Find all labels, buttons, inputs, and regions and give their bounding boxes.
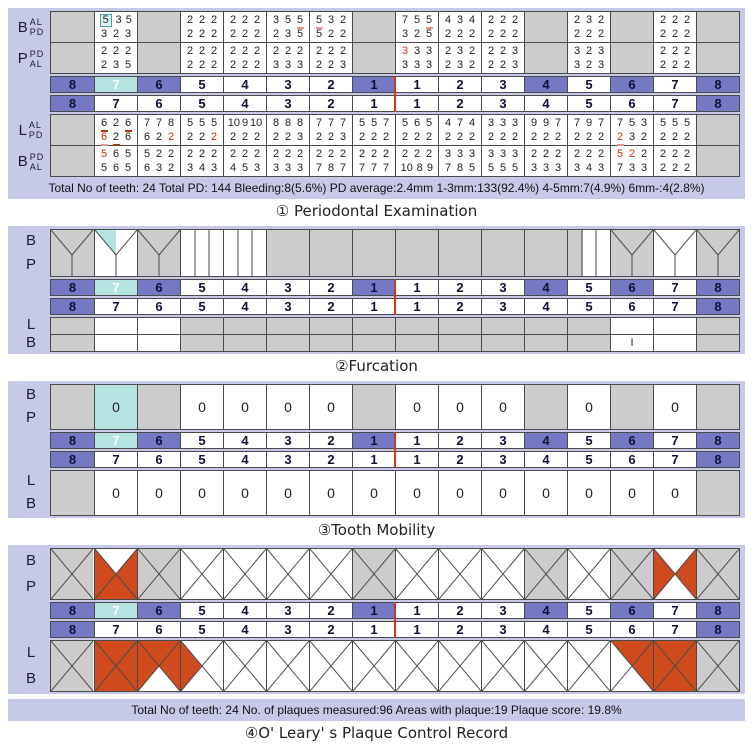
tooth-number-upper-R1[interactable]: 1 xyxy=(395,603,438,618)
plaque-lower-cell-R4[interactable] xyxy=(524,641,567,691)
tooth-number-lower-L1[interactable]: 1 xyxy=(352,299,395,314)
tooth-number-upper-L5[interactable]: 5 xyxy=(180,603,223,618)
tooth-number-lower-L3[interactable]: 3 xyxy=(266,452,309,467)
mobility-lower-cell-L5[interactable]: 0 xyxy=(180,471,223,515)
furcation-lower-cell-R1[interactable] xyxy=(395,335,438,351)
tooth-number-upper-L6[interactable]: 6 xyxy=(137,280,180,295)
plaque-upper-cell-R1[interactable] xyxy=(395,549,438,599)
tooth-number-upper-R5[interactable]: 5 xyxy=(567,433,610,448)
perio-buccal-lower-cell-R8[interactable] xyxy=(696,146,739,176)
tooth-number-upper-L4[interactable]: 4 xyxy=(223,77,266,92)
furcation-lower-cell-L5[interactable] xyxy=(180,318,223,334)
tooth-number-lower-L2[interactable]: 2 xyxy=(309,96,352,111)
tooth-number-lower-R3[interactable]: 3 xyxy=(481,452,524,467)
perio-buccal-cell-L1[interactable] xyxy=(352,12,395,42)
furcation-upper-cell-R3[interactable] xyxy=(481,230,524,276)
perio-buccal-cell-L6[interactable] xyxy=(137,12,180,42)
tooth-number-upper-R3[interactable]: 3 xyxy=(481,77,524,92)
perio-buccal-cell-R8[interactable] xyxy=(696,12,739,42)
tooth-number-upper-R7[interactable]: 7 xyxy=(653,280,696,295)
furcation-lower-cell-L2[interactable] xyxy=(309,335,352,351)
plaque-upper-cell-R8[interactable] xyxy=(696,549,739,599)
furcation-upper-cell-R2[interactable] xyxy=(438,230,481,276)
mobility-upper-cell-R7[interactable]: 0 xyxy=(653,385,696,429)
perio-buccal-lower-cell-L8[interactable] xyxy=(51,146,94,176)
tooth-number-upper-R3[interactable]: 3 xyxy=(481,280,524,295)
furcation-lower-cell-L7[interactable] xyxy=(94,335,137,351)
perio-buccal-lower-cell-R4[interactable]: 222333 xyxy=(524,146,567,176)
tooth-number-lower-L7[interactable]: 7 xyxy=(94,96,137,111)
tooth-number-upper-R6[interactable]: 6 xyxy=(610,433,653,448)
plaque-lower-cell-R7[interactable] xyxy=(653,641,696,691)
tooth-number-upper-L5[interactable]: 5 xyxy=(180,433,223,448)
tooth-number-lower-R6[interactable]: 6 xyxy=(610,452,653,467)
mobility-upper-cell-L7[interactable]: 0 xyxy=(94,385,137,429)
tooth-number-upper-L7[interactable]: 7 xyxy=(94,77,137,92)
perio-palatal-cell-R6[interactable] xyxy=(610,43,653,73)
mobility-lower-cell-R6[interactable]: 0 xyxy=(610,471,653,515)
plaque-upper-cell-L2[interactable] xyxy=(309,549,352,599)
tooth-number-upper-L4[interactable]: 4 xyxy=(223,280,266,295)
tooth-number-lower-L6[interactable]: 6 xyxy=(137,299,180,314)
perio-lingual-cell-L1[interactable]: 557222 xyxy=(352,115,395,145)
perio-lingual-cell-L8[interactable] xyxy=(51,115,94,145)
tooth-number-upper-R7[interactable]: 7 xyxy=(653,77,696,92)
mobility-upper-cell-R1[interactable]: 0 xyxy=(395,385,438,429)
tooth-number-lower-L2[interactable]: 2 xyxy=(309,452,352,467)
perio-buccal-cell-R4[interactable] xyxy=(524,12,567,42)
perio-buccal-cell-R2[interactable]: 434222 xyxy=(438,12,481,42)
tooth-number-lower-R8[interactable]: 8 xyxy=(696,96,739,111)
tooth-number-lower-L8[interactable]: 8 xyxy=(51,622,94,637)
furcation-upper-cell-L6[interactable] xyxy=(137,230,180,276)
tooth-number-upper-L8[interactable]: 8 xyxy=(51,603,94,618)
tooth-number-upper-L3[interactable]: 3 xyxy=(266,603,309,618)
perio-palatal-cell-L3[interactable]: 222333 xyxy=(266,43,309,73)
perio-buccal-cell-R7[interactable]: 222222 xyxy=(653,12,696,42)
perio-buccal-lower-cell-L4[interactable]: 222453 xyxy=(223,146,266,176)
perio-palatal-cell-R8[interactable] xyxy=(696,43,739,73)
tooth-number-upper-L7[interactable]: 7 xyxy=(94,433,137,448)
tooth-number-upper-R5[interactable]: 5 xyxy=(567,603,610,618)
tooth-number-lower-L8[interactable]: 8 xyxy=(51,299,94,314)
perio-buccal-cell-R6[interactable] xyxy=(610,12,653,42)
plaque-upper-cell-L5[interactable] xyxy=(180,549,223,599)
furcation-upper-cell-R8[interactable] xyxy=(696,230,739,276)
perio-palatal-cell-R4[interactable] xyxy=(524,43,567,73)
tooth-number-lower-L2[interactable]: 2 xyxy=(309,622,352,637)
furcation-lower-cell-L2[interactable] xyxy=(309,318,352,334)
tooth-number-upper-L3[interactable]: 3 xyxy=(266,280,309,295)
perio-buccal-lower-cell-R6[interactable]: 522733 xyxy=(610,146,653,176)
tooth-number-upper-L3[interactable]: 3 xyxy=(266,433,309,448)
mobility-lower-cell-L4[interactable]: 0 xyxy=(223,471,266,515)
tooth-number-lower-R3[interactable]: 3 xyxy=(481,96,524,111)
tooth-number-upper-R8[interactable]: 8 xyxy=(696,603,739,618)
perio-palatal-cell-L4[interactable]: 222222 xyxy=(223,43,266,73)
perio-lingual-cell-R8[interactable] xyxy=(696,115,739,145)
mobility-lower-cell-L3[interactable]: 0 xyxy=(266,471,309,515)
mobility-lower-cell-R1[interactable]: 0 xyxy=(395,471,438,515)
mobility-lower-cell-L6[interactable]: 0 xyxy=(137,471,180,515)
perio-palatal-cell-R2[interactable]: 232232 xyxy=(438,43,481,73)
plaque-lower-cell-R3[interactable] xyxy=(481,641,524,691)
mobility-lower-cell-L2[interactable]: 0 xyxy=(309,471,352,515)
tooth-number-upper-R8[interactable]: 8 xyxy=(696,433,739,448)
tooth-number-upper-R5[interactable]: 5 xyxy=(567,280,610,295)
tooth-number-lower-L6[interactable]: 6 xyxy=(137,452,180,467)
tooth-number-lower-L1[interactable]: 1 xyxy=(352,96,395,111)
tooth-number-lower-L8[interactable]: 8 xyxy=(51,96,94,111)
perio-buccal-lower-cell-L2[interactable]: 222787 xyxy=(309,146,352,176)
plaque-upper-cell-L6[interactable] xyxy=(137,549,180,599)
perio-buccal-cell-L5[interactable]: 222222 xyxy=(180,12,223,42)
perio-buccal-cell-L4[interactable]: 222222 xyxy=(223,12,266,42)
furcation-lower-cell-R4[interactable] xyxy=(524,318,567,334)
tooth-number-lower-R4[interactable]: 4 xyxy=(524,299,567,314)
perio-palatal-cell-L6[interactable] xyxy=(137,43,180,73)
plaque-upper-cell-L1[interactable] xyxy=(352,549,395,599)
mobility-upper-cell-R8[interactable] xyxy=(696,385,739,429)
perio-palatal-cell-L1[interactable] xyxy=(352,43,395,73)
tooth-number-upper-R2[interactable]: 2 xyxy=(438,433,481,448)
tooth-number-upper-L8[interactable]: 8 xyxy=(51,77,94,92)
tooth-number-lower-L5[interactable]: 5 xyxy=(180,452,223,467)
perio-buccal-cell-R5[interactable]: 232222 xyxy=(567,12,610,42)
furcation-lower-cell-R7[interactable] xyxy=(653,318,696,334)
tooth-number-upper-L6[interactable]: 6 xyxy=(137,433,180,448)
perio-lingual-cell-L2[interactable]: 777223 xyxy=(309,115,352,145)
plaque-lower-cell-L5[interactable] xyxy=(180,641,223,691)
plaque-lower-cell-L7[interactable] xyxy=(94,641,137,691)
tooth-number-lower-R7[interactable]: 7 xyxy=(653,299,696,314)
tooth-number-upper-R7[interactable]: 7 xyxy=(653,603,696,618)
furcation-upper-cell-L1[interactable] xyxy=(352,230,395,276)
tooth-number-lower-L7[interactable]: 7 xyxy=(94,299,137,314)
perio-buccal-lower-cell-R2[interactable]: 333785 xyxy=(438,146,481,176)
perio-buccal-cell-L7[interactable]: 535323 xyxy=(94,12,137,42)
plaque-upper-cell-L7[interactable] xyxy=(94,549,137,599)
perio-buccal-lower-cell-L1[interactable]: 222777 xyxy=(352,146,395,176)
plaque-upper-cell-R5[interactable] xyxy=(567,549,610,599)
mobility-upper-cell-L2[interactable]: 0 xyxy=(309,385,352,429)
furcation-upper-cell-L5[interactable] xyxy=(180,230,223,276)
perio-palatal-cell-R1[interactable]: 333333 xyxy=(395,43,438,73)
tooth-number-upper-R4[interactable]: 4 xyxy=(524,280,567,295)
tooth-number-upper-R7[interactable]: 7 xyxy=(653,433,696,448)
tooth-number-upper-R8[interactable]: 8 xyxy=(696,77,739,92)
perio-buccal-lower-cell-L5[interactable]: 222343 xyxy=(180,146,223,176)
tooth-number-upper-R6[interactable]: 6 xyxy=(610,77,653,92)
tooth-number-lower-R4[interactable]: 4 xyxy=(524,96,567,111)
perio-lingual-cell-L3[interactable]: 888223 xyxy=(266,115,309,145)
mobility-upper-cell-L1[interactable] xyxy=(352,385,395,429)
furcation-lower-cell-R7[interactable] xyxy=(653,335,696,351)
mobility-upper-cell-R2[interactable]: 0 xyxy=(438,385,481,429)
plaque-lower-cell-L2[interactable] xyxy=(309,641,352,691)
mobility-lower-cell-R5[interactable]: 0 xyxy=(567,471,610,515)
plaque-lower-cell-R2[interactable] xyxy=(438,641,481,691)
tooth-number-upper-L7[interactable]: 7 xyxy=(94,280,137,295)
perio-palatal-cell-L8[interactable] xyxy=(51,43,94,73)
tooth-number-upper-R3[interactable]: 3 xyxy=(481,603,524,618)
mobility-lower-cell-R8[interactable] xyxy=(696,471,739,515)
perio-palatal-cell-R7[interactable]: 222222 xyxy=(653,43,696,73)
tooth-number-upper-L3[interactable]: 3 xyxy=(266,77,309,92)
furcation-upper-cell-L7[interactable] xyxy=(94,230,137,276)
tooth-number-upper-R2[interactable]: 2 xyxy=(438,280,481,295)
perio-lingual-cell-L6[interactable]: 778622 xyxy=(137,115,180,145)
tooth-number-lower-R7[interactable]: 7 xyxy=(653,452,696,467)
tooth-number-lower-R1[interactable]: 1 xyxy=(395,96,438,111)
mobility-lower-cell-L7[interactable]: 0 xyxy=(94,471,137,515)
tooth-number-lower-L7[interactable]: 7 xyxy=(94,452,137,467)
tooth-number-lower-L3[interactable]: 3 xyxy=(266,299,309,314)
tooth-number-upper-L6[interactable]: 6 xyxy=(137,77,180,92)
tooth-number-lower-L2[interactable]: 2 xyxy=(309,299,352,314)
plaque-upper-cell-R2[interactable] xyxy=(438,549,481,599)
plaque-upper-cell-R4[interactable] xyxy=(524,549,567,599)
tooth-number-lower-R6[interactable]: 6 xyxy=(610,622,653,637)
furcation-upper-cell-L2[interactable] xyxy=(309,230,352,276)
tooth-number-upper-L2[interactable]: 2 xyxy=(309,603,352,618)
perio-lingual-cell-L4[interactable]: 10910222 xyxy=(223,115,266,145)
furcation-lower-cell-R2[interactable] xyxy=(438,318,481,334)
furcation-lower-cell-R1[interactable] xyxy=(395,318,438,334)
plaque-upper-cell-L3[interactable] xyxy=(266,549,309,599)
mobility-lower-cell-R7[interactable]: 0 xyxy=(653,471,696,515)
perio-lingual-cell-R4[interactable]: 997222 xyxy=(524,115,567,145)
tooth-number-lower-R4[interactable]: 4 xyxy=(524,452,567,467)
plaque-lower-cell-R5[interactable] xyxy=(567,641,610,691)
tooth-number-lower-L4[interactable]: 4 xyxy=(223,299,266,314)
furcation-upper-cell-R6[interactable] xyxy=(610,230,653,276)
plaque-upper-cell-R3[interactable] xyxy=(481,549,524,599)
furcation-lower-cell-L8[interactable] xyxy=(51,335,94,351)
tooth-number-lower-L7[interactable]: 7 xyxy=(94,622,137,637)
plaque-upper-cell-L8[interactable] xyxy=(51,549,94,599)
tooth-number-upper-R5[interactable]: 5 xyxy=(567,77,610,92)
furcation-lower-cell-L5[interactable] xyxy=(180,335,223,351)
tooth-number-upper-L2[interactable]: 2 xyxy=(309,77,352,92)
perio-palatal-cell-L5[interactable]: 222222 xyxy=(180,43,223,73)
furcation-lower-cell-L3[interactable] xyxy=(266,318,309,334)
perio-buccal-cell-L2[interactable]: 532522 xyxy=(309,12,352,42)
perio-buccal-cell-R3[interactable]: 222222 xyxy=(481,12,524,42)
mobility-lower-cell-L8[interactable] xyxy=(51,471,94,515)
tooth-number-lower-L1[interactable]: 1 xyxy=(352,622,395,637)
tooth-number-upper-L1[interactable]: 1 xyxy=(352,433,395,448)
furcation-upper-cell-R7[interactable] xyxy=(653,230,696,276)
furcation-lower-cell-L6[interactable] xyxy=(137,318,180,334)
mobility-lower-cell-L1[interactable]: 0 xyxy=(352,471,395,515)
furcation-lower-cell-R8[interactable] xyxy=(696,318,739,334)
furcation-lower-cell-L4[interactable] xyxy=(223,318,266,334)
mobility-upper-cell-R5[interactable]: 0 xyxy=(567,385,610,429)
tooth-number-upper-L6[interactable]: 6 xyxy=(137,603,180,618)
perio-buccal-lower-cell-L6[interactable]: 522632 xyxy=(137,146,180,176)
mobility-lower-cell-R3[interactable]: 0 xyxy=(481,471,524,515)
furcation-upper-cell-R1[interactable] xyxy=(395,230,438,276)
perio-lingual-cell-R5[interactable]: 797222 xyxy=(567,115,610,145)
plaque-upper-cell-L4[interactable] xyxy=(223,549,266,599)
tooth-number-lower-L4[interactable]: 4 xyxy=(223,96,266,111)
tooth-number-lower-L3[interactable]: 3 xyxy=(266,96,309,111)
perio-palatal-cell-L7[interactable]: 222235 xyxy=(94,43,137,73)
tooth-number-lower-R2[interactable]: 2 xyxy=(438,452,481,467)
tooth-number-lower-R4[interactable]: 4 xyxy=(524,622,567,637)
tooth-number-lower-R6[interactable]: 6 xyxy=(610,299,653,314)
perio-buccal-lower-cell-L7[interactable]: 565565 xyxy=(94,146,137,176)
furcation-lower-cell-L7[interactable] xyxy=(94,318,137,334)
tooth-number-lower-L5[interactable]: 5 xyxy=(180,622,223,637)
furcation-lower-cell-L8[interactable] xyxy=(51,318,94,334)
furcation-lower-cell-L3[interactable] xyxy=(266,335,309,351)
tooth-number-lower-L6[interactable]: 6 xyxy=(137,96,180,111)
tooth-number-upper-L8[interactable]: 8 xyxy=(51,280,94,295)
tooth-number-lower-L3[interactable]: 3 xyxy=(266,622,309,637)
furcation-upper-cell-L3[interactable] xyxy=(266,230,309,276)
tooth-number-upper-L5[interactable]: 5 xyxy=(180,77,223,92)
tooth-number-lower-L4[interactable]: 4 xyxy=(223,622,266,637)
furcation-lower-cell-R4[interactable] xyxy=(524,335,567,351)
furcation-lower-cell-R3[interactable] xyxy=(481,335,524,351)
plaque-lower-cell-R1[interactable] xyxy=(395,641,438,691)
tooth-number-upper-L1[interactable]: 1 xyxy=(352,77,395,92)
tooth-number-upper-L4[interactable]: 4 xyxy=(223,603,266,618)
tooth-number-lower-R8[interactable]: 8 xyxy=(696,452,739,467)
tooth-number-lower-R5[interactable]: 5 xyxy=(567,452,610,467)
tooth-number-lower-R7[interactable]: 7 xyxy=(653,96,696,111)
tooth-number-lower-L6[interactable]: 6 xyxy=(137,622,180,637)
furcation-lower-cell-R3[interactable] xyxy=(481,318,524,334)
plaque-lower-cell-L3[interactable] xyxy=(266,641,309,691)
tooth-number-upper-L8[interactable]: 8 xyxy=(51,433,94,448)
perio-buccal-lower-cell-R1[interactable]: 2221089 xyxy=(395,146,438,176)
mobility-upper-cell-R3[interactable]: 0 xyxy=(481,385,524,429)
perio-lingual-cell-R2[interactable]: 474222 xyxy=(438,115,481,145)
tooth-number-lower-R1[interactable]: 1 xyxy=(395,299,438,314)
tooth-number-lower-L8[interactable]: 8 xyxy=(51,452,94,467)
tooth-number-lower-R5[interactable]: 5 xyxy=(567,622,610,637)
tooth-number-lower-R8[interactable]: 8 xyxy=(696,622,739,637)
tooth-number-upper-R3[interactable]: 3 xyxy=(481,433,524,448)
tooth-number-upper-R6[interactable]: 6 xyxy=(610,280,653,295)
tooth-number-lower-R3[interactable]: 3 xyxy=(481,299,524,314)
tooth-number-upper-R4[interactable]: 4 xyxy=(524,603,567,618)
plaque-lower-cell-L1[interactable] xyxy=(352,641,395,691)
tooth-number-upper-L7[interactable]: 7 xyxy=(94,603,137,618)
mobility-upper-cell-L5[interactable]: 0 xyxy=(180,385,223,429)
furcation-lower-cell-R5[interactable] xyxy=(567,318,610,334)
plaque-lower-cell-L6[interactable] xyxy=(137,641,180,691)
perio-lingual-cell-R3[interactable]: 333222 xyxy=(481,115,524,145)
perio-buccal-lower-cell-R3[interactable]: 333555 xyxy=(481,146,524,176)
tooth-number-upper-L5[interactable]: 5 xyxy=(180,280,223,295)
mobility-upper-cell-L4[interactable]: 0 xyxy=(223,385,266,429)
tooth-number-upper-L2[interactable]: 2 xyxy=(309,280,352,295)
plaque-lower-cell-L8[interactable] xyxy=(51,641,94,691)
tooth-number-upper-L1[interactable]: 1 xyxy=(352,280,395,295)
tooth-number-lower-R2[interactable]: 2 xyxy=(438,622,481,637)
tooth-number-upper-R4[interactable]: 4 xyxy=(524,433,567,448)
furcation-lower-cell-R8[interactable] xyxy=(696,335,739,351)
perio-lingual-cell-L7[interactable]: 626626 xyxy=(94,115,137,145)
tooth-number-lower-L1[interactable]: 1 xyxy=(352,452,395,467)
plaque-lower-cell-L4[interactable] xyxy=(223,641,266,691)
furcation-upper-cell-R4[interactable] xyxy=(524,230,567,276)
tooth-number-lower-R2[interactable]: 2 xyxy=(438,96,481,111)
mobility-upper-cell-L8[interactable] xyxy=(51,385,94,429)
perio-lingual-cell-R7[interactable]: 555222 xyxy=(653,115,696,145)
perio-palatal-cell-L2[interactable]: 222223 xyxy=(309,43,352,73)
perio-palatal-cell-R5[interactable]: 323323 xyxy=(567,43,610,73)
perio-buccal-cell-L8[interactable] xyxy=(51,12,94,42)
furcation-lower-cell-L1[interactable] xyxy=(352,318,395,334)
perio-palatal-cell-R3[interactable]: 223223 xyxy=(481,43,524,73)
perio-lingual-cell-L5[interactable]: 555222 xyxy=(180,115,223,145)
furcation-upper-cell-L8[interactable] xyxy=(51,230,94,276)
tooth-number-lower-R7[interactable]: 7 xyxy=(653,622,696,637)
perio-lingual-cell-R1[interactable]: 565222 xyxy=(395,115,438,145)
tooth-number-upper-L1[interactable]: 1 xyxy=(352,603,395,618)
perio-buccal-lower-cell-R7[interactable]: 222222 xyxy=(653,146,696,176)
tooth-number-lower-L5[interactable]: 5 xyxy=(180,299,223,314)
furcation-upper-cell-R5[interactable] xyxy=(567,230,610,276)
tooth-number-upper-R8[interactable]: 8 xyxy=(696,280,739,295)
tooth-number-upper-R1[interactable]: 1 xyxy=(395,77,438,92)
mobility-lower-cell-R2[interactable]: 0 xyxy=(438,471,481,515)
tooth-number-lower-R6[interactable]: 6 xyxy=(610,96,653,111)
tooth-number-upper-R2[interactable]: 2 xyxy=(438,603,481,618)
mobility-upper-cell-R4[interactable] xyxy=(524,385,567,429)
tooth-number-upper-R1[interactable]: 1 xyxy=(395,433,438,448)
mobility-upper-cell-L6[interactable] xyxy=(137,385,180,429)
tooth-number-lower-R1[interactable]: 1 xyxy=(395,622,438,637)
furcation-lower-cell-L4[interactable] xyxy=(223,335,266,351)
tooth-number-lower-L4[interactable]: 4 xyxy=(223,452,266,467)
perio-lingual-cell-R6[interactable]: 753232 xyxy=(610,115,653,145)
tooth-number-upper-L4[interactable]: 4 xyxy=(223,433,266,448)
mobility-upper-cell-L3[interactable]: 0 xyxy=(266,385,309,429)
tooth-number-upper-R4[interactable]: 4 xyxy=(524,77,567,92)
plaque-lower-cell-R6[interactable] xyxy=(610,641,653,691)
tooth-number-upper-R1[interactable]: 1 xyxy=(395,280,438,295)
plaque-lower-cell-R8[interactable] xyxy=(696,641,739,691)
perio-buccal-lower-cell-R5[interactable]: 222343 xyxy=(567,146,610,176)
mobility-upper-cell-R6[interactable] xyxy=(610,385,653,429)
tooth-number-upper-R2[interactable]: 2 xyxy=(438,77,481,92)
perio-buccal-cell-R1[interactable]: 755325 xyxy=(395,12,438,42)
furcation-upper-cell-L4[interactable] xyxy=(223,230,266,276)
furcation-lower-cell-L1[interactable] xyxy=(352,335,395,351)
tooth-number-lower-L5[interactable]: 5 xyxy=(180,96,223,111)
tooth-number-upper-L2[interactable]: 2 xyxy=(309,433,352,448)
tooth-number-upper-R6[interactable]: 6 xyxy=(610,603,653,618)
perio-buccal-lower-cell-L3[interactable]: 222333 xyxy=(266,146,309,176)
tooth-number-lower-R2[interactable]: 2 xyxy=(438,299,481,314)
tooth-number-lower-R1[interactable]: 1 xyxy=(395,452,438,467)
tooth-number-lower-R5[interactable]: 5 xyxy=(567,96,610,111)
plaque-upper-cell-R6[interactable] xyxy=(610,549,653,599)
tooth-number-lower-R5[interactable]: 5 xyxy=(567,299,610,314)
furcation-lower-cell-R2[interactable] xyxy=(438,335,481,351)
furcation-lower-cell-L6[interactable] xyxy=(137,335,180,351)
tooth-number-lower-R8[interactable]: 8 xyxy=(696,299,739,314)
perio-buccal-cell-L3[interactable]: 355235 xyxy=(266,12,309,42)
plaque-upper-cell-R7[interactable] xyxy=(653,549,696,599)
tooth-number-lower-R3[interactable]: 3 xyxy=(481,622,524,637)
